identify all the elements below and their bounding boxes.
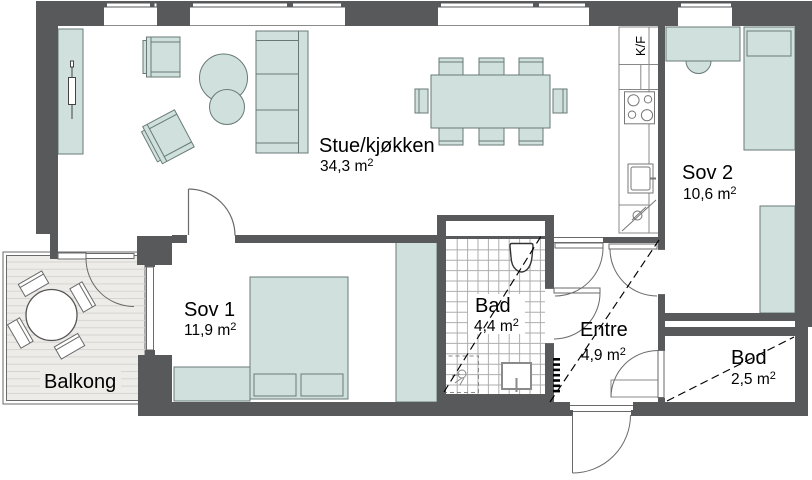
svg-text:Sov 1: Sov 1 — [184, 299, 235, 321]
svg-text:Stue/kjøkken: Stue/kjøkken — [319, 135, 435, 157]
svg-text:Entre: Entre — [580, 319, 628, 341]
svg-text:34,3 m2: 34,3 m2 — [320, 157, 374, 175]
svg-text:K/F: K/F — [633, 36, 648, 56]
svg-text:4,9 m2: 4,9 m2 — [581, 346, 626, 364]
svg-text:2,5 m2: 2,5 m2 — [731, 370, 776, 388]
svg-text:Sov 2: Sov 2 — [682, 162, 733, 184]
svg-text:11,9 m2: 11,9 m2 — [184, 321, 236, 339]
svg-text:10,6 m2: 10,6 m2 — [683, 185, 737, 203]
svg-text:Balkong: Balkong — [44, 371, 116, 393]
